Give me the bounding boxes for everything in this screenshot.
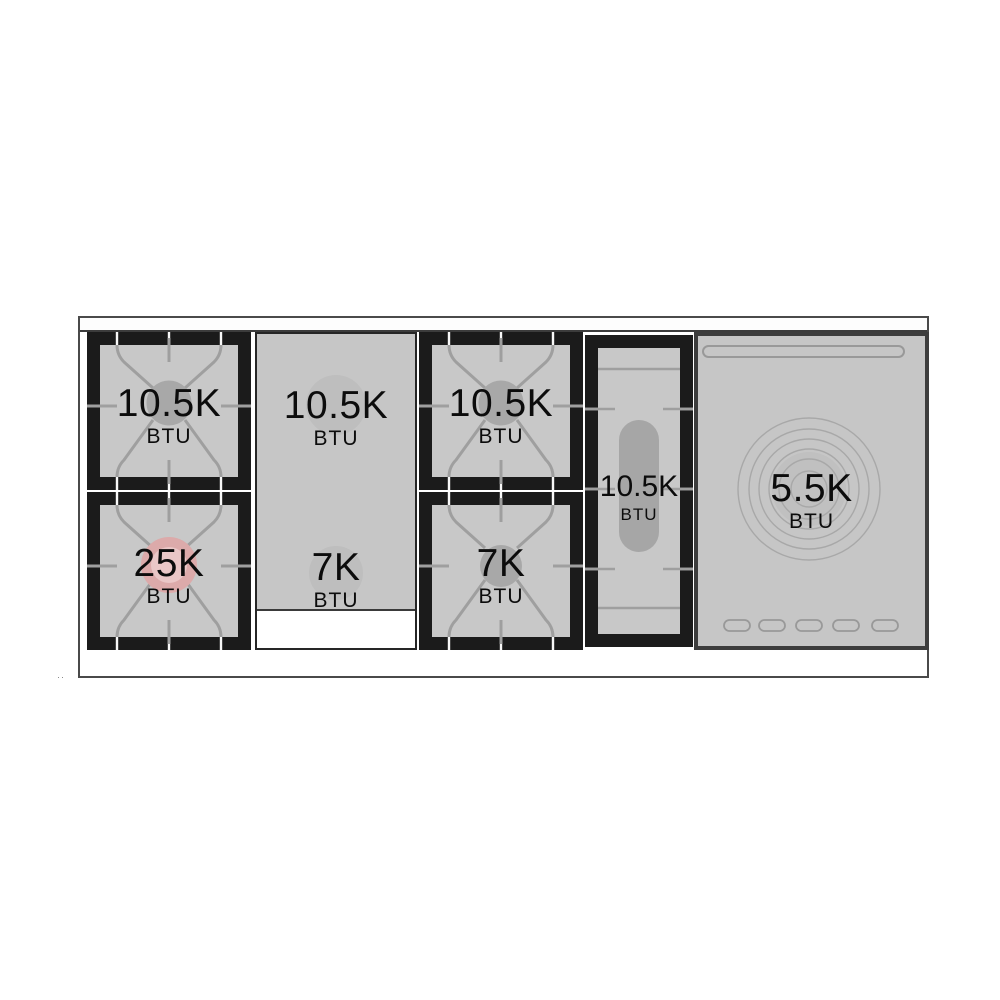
burner-power-label: 25K	[81, 543, 257, 585]
module-left-burners: 10.5K BTU	[87, 332, 251, 650]
burner-middle-top: 10.5K BTU	[419, 332, 583, 490]
burner-power-label: 7K	[413, 543, 589, 585]
btu-unit-label: BTU	[87, 426, 251, 447]
cooktop-diagram: 10.5K BTU	[78, 316, 929, 678]
griddle-front-tray	[257, 609, 415, 648]
module-griddle: 10.5K BTU 7K BTU	[255, 332, 417, 650]
burner-middle-bottom: 7K BTU	[419, 492, 583, 650]
btu-unit-label: BTU	[257, 428, 415, 449]
cooktop-deck: 10.5K BTU	[80, 332, 927, 651]
burner-power-label: 10.5K	[413, 383, 589, 425]
burner-power-label: 10.5K	[81, 383, 257, 425]
handle-bar-icon	[703, 346, 904, 357]
btu-unit-label: BTU	[257, 590, 415, 611]
cooktop-back-ledge	[80, 318, 927, 332]
btu-unit-label: BTU	[87, 586, 251, 607]
module-oval-burner: 10.5K BTU	[585, 335, 693, 647]
figure-canvas: 10.5K BTU	[0, 0, 1000, 1000]
burner-left-top: 10.5K BTU	[87, 332, 251, 490]
burner-left-bottom-power: 25K BTU	[87, 492, 251, 650]
griddle-power-label: 10.5K	[251, 385, 421, 427]
btu-unit-label: BTU	[698, 511, 925, 532]
control-buttons-icon	[724, 620, 898, 631]
module-middle-burners: 10.5K BTU	[419, 332, 583, 650]
module-warming-zone: 5.5K BTU	[694, 332, 929, 650]
stray-mark: ··	[57, 672, 65, 682]
btu-unit-label: BTU	[585, 506, 693, 524]
btu-unit-label: BTU	[419, 586, 583, 607]
burner-power-label: 5.5K	[692, 468, 931, 510]
griddle-power-label: 7K	[251, 547, 421, 589]
burner-power-label: 10.5K	[579, 470, 699, 504]
btu-unit-label: BTU	[419, 426, 583, 447]
